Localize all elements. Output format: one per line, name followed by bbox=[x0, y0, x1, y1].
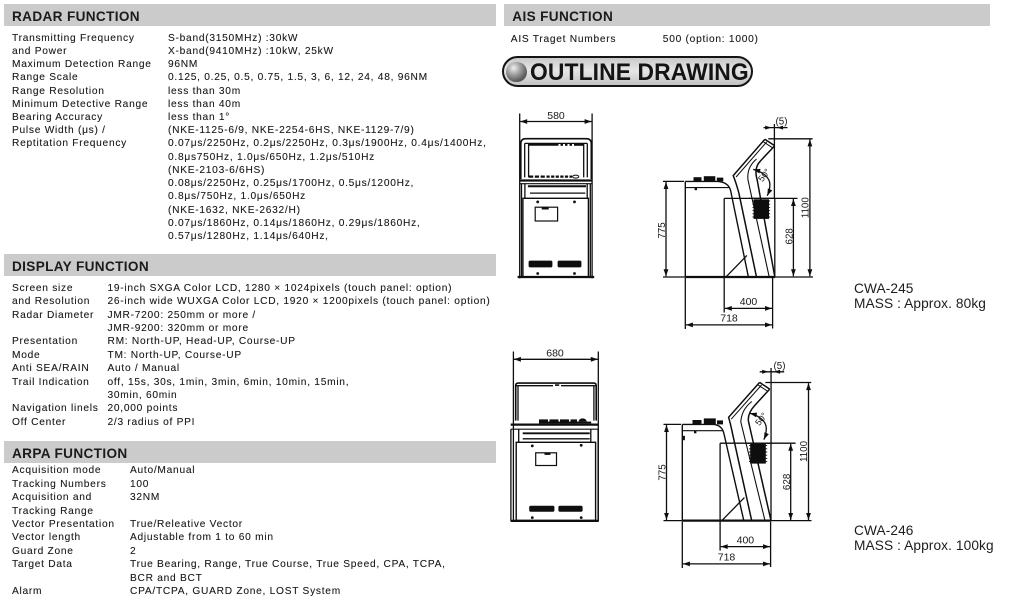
svg-text:1100: 1100 bbox=[801, 197, 812, 219]
svg-text:775: 775 bbox=[657, 222, 668, 239]
svg-text:628: 628 bbox=[782, 473, 793, 490]
svg-text:775: 775 bbox=[658, 464, 669, 481]
svg-text:400: 400 bbox=[737, 534, 755, 546]
svg-text:50°: 50° bbox=[753, 410, 770, 427]
svg-text:580: 580 bbox=[547, 110, 565, 122]
svg-text:718: 718 bbox=[720, 313, 738, 325]
svg-text:628: 628 bbox=[785, 228, 796, 245]
svg-text:400: 400 bbox=[740, 296, 758, 308]
svg-text:718: 718 bbox=[718, 552, 736, 564]
svg-text:(5): (5) bbox=[776, 117, 788, 128]
svg-text:1100: 1100 bbox=[799, 440, 810, 462]
svg-text:50°: 50° bbox=[756, 166, 773, 183]
svg-text:680: 680 bbox=[546, 347, 564, 359]
